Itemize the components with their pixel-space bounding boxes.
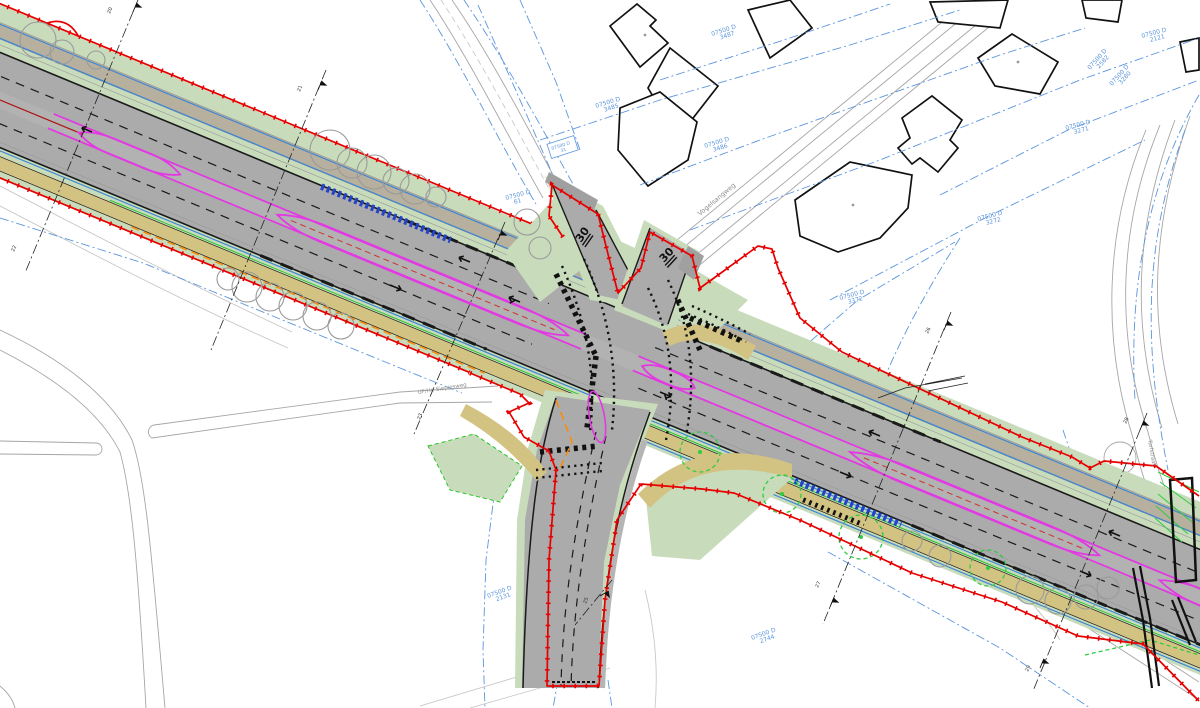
parcel-label: 07500 D2744 bbox=[750, 626, 779, 647]
svg-text:27: 27 bbox=[814, 581, 822, 589]
parcel-label: 07500 D61 bbox=[505, 188, 533, 207]
svg-text:28: 28 bbox=[1122, 417, 1130, 425]
station-number: 22 bbox=[10, 245, 18, 253]
site-plan-canvas: 30 30 Vogelsangweg Turfstraat UF/Hr. Sie… bbox=[0, 0, 1200, 708]
svg-text:Vogelsangweg: Vogelsangweg bbox=[696, 181, 737, 217]
station-number: 27 bbox=[814, 581, 822, 589]
parcel-label: 07500 D3486 bbox=[704, 136, 733, 156]
parcel-label-boxed: 07500 D 31 bbox=[547, 136, 578, 159]
street-label-vogelsangweg: Vogelsangweg bbox=[696, 181, 737, 217]
south-leg-road bbox=[515, 390, 658, 688]
station-number: 23 bbox=[416, 413, 424, 421]
station-number: 26 bbox=[924, 327, 932, 335]
svg-text:26: 26 bbox=[924, 327, 932, 335]
engineering-plan-drawing: 30 30 Vogelsangweg Turfstraat UF/Hr. Sie… bbox=[0, 0, 1200, 708]
svg-text:Turfstraat: Turfstraat bbox=[1146, 438, 1157, 467]
station-number: 21 bbox=[296, 85, 304, 93]
note-label: UF/Hr. Siepiesweg bbox=[417, 382, 467, 396]
parcel-label: 07500 D3272 bbox=[977, 209, 1005, 228]
parcel-label: 07500 D3280 bbox=[1108, 63, 1135, 91]
svg-text:21: 21 bbox=[296, 85, 304, 93]
station-number: 28 bbox=[1122, 417, 1130, 425]
svg-text:22: 22 bbox=[10, 245, 18, 253]
svg-text:23: 23 bbox=[416, 413, 424, 421]
parcel-label: 07500 D3487 bbox=[710, 23, 739, 43]
svg-text:29: 29 bbox=[1024, 665, 1032, 673]
parcel-label: 07500 D3271 bbox=[1065, 118, 1093, 137]
parcel-label: 07500 D2131 bbox=[486, 584, 515, 605]
svg-text:61: 61 bbox=[513, 197, 522, 206]
parcel-label: 07500 D3485 bbox=[595, 96, 624, 116]
parcel-label: 07500 D2582 bbox=[1086, 47, 1113, 75]
station-number: 29 bbox=[1024, 665, 1032, 673]
station-number: 20 bbox=[106, 7, 114, 15]
svg-text:20: 20 bbox=[106, 7, 114, 15]
svg-text:UF/Hr. Siepiesweg: UF/Hr. Siepiesweg bbox=[417, 382, 467, 396]
parcel-label: 07500 D2121 bbox=[1141, 26, 1169, 45]
street-label-turfstraat: Turfstraat bbox=[1146, 438, 1157, 467]
